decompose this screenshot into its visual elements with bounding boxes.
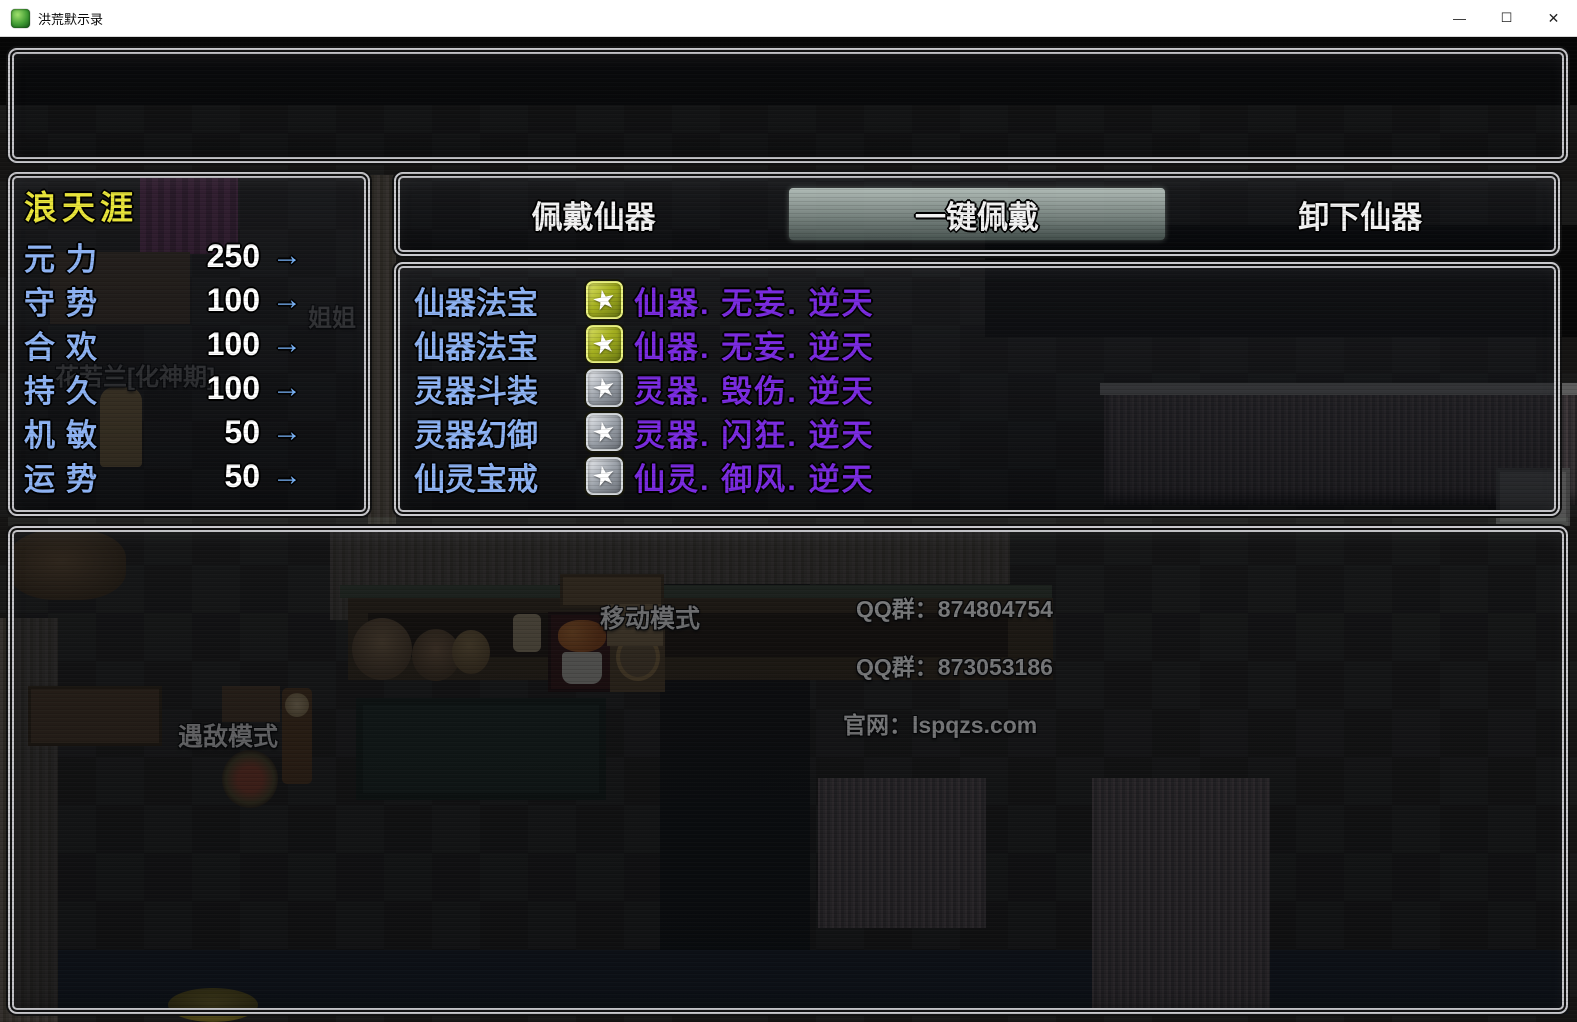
window-controls: — ☐ ✕ [1436, 0, 1577, 37]
stat-value: 100 [207, 326, 260, 363]
stat-row-yuanli: 元力 250 → [24, 234, 354, 278]
stat-label: 机敏 [24, 410, 108, 455]
tab-one-key-equip[interactable]: 一键佩戴 [789, 188, 1164, 240]
stat-row-chijiu: 持久 100 → [24, 366, 354, 410]
close-button-icon[interactable]: ✕ [1530, 0, 1577, 37]
equip-item-name: 灵器. 闪狂. 逆天 [634, 410, 874, 455]
equipment-row[interactable]: 仙器法宝 ★ 仙器. 无妄. 逆天 [414, 322, 1540, 366]
stat-value: 100 [207, 282, 260, 319]
maximize-button-icon[interactable]: ☐ [1483, 0, 1530, 37]
tab-unequip-artifact[interactable]: 卸下仙器 [1173, 188, 1548, 240]
character-name: 浪天涯 [24, 182, 354, 234]
equipment-row[interactable]: 仙灵宝戒 ★ 仙灵. 御风. 逆天 [414, 454, 1540, 498]
equipment-row[interactable]: 仙器法宝 ★ 仙器. 无妄. 逆天 [414, 278, 1540, 322]
stat-row-yunshi: 运势 50 → [24, 454, 354, 498]
stat-label: 元力 [24, 234, 108, 279]
equipment-panel: 仙器法宝 ★ 仙器. 无妄. 逆天 仙器法宝 ★ 仙器. 无妄. 逆天 灵器斗装… [394, 262, 1560, 516]
tab-bar-panel: 佩戴仙器 一键佩戴 卸下仙器 [394, 172, 1560, 256]
stat-arrow-icon: → [260, 459, 302, 493]
stat-arrow-icon: → [260, 415, 302, 449]
stat-value: 50 [224, 414, 260, 451]
star-icon: ★ [586, 369, 623, 407]
stat-label: 持久 [24, 366, 108, 411]
window-titlebar: 洪荒默示录 — ☐ ✕ [0, 0, 1577, 37]
equipment-row[interactable]: 灵器幻御 ★ 灵器. 闪狂. 逆天 [414, 410, 1540, 454]
app-icon [11, 9, 30, 28]
stat-value: 250 [207, 238, 260, 275]
stat-arrow-icon: → [260, 371, 302, 405]
stat-value: 50 [224, 458, 260, 495]
window-title: 洪荒默示录 [38, 9, 103, 28]
game-screen: 花若兰[化神期] 姐姐 移动模式 遇敌模式 QQ群：874804754 QQ群：… [0, 37, 1577, 1022]
equip-slot-label: 仙器法宝 [414, 322, 586, 367]
star-icon: ★ [586, 413, 623, 451]
top-strip-panel [8, 48, 1568, 163]
equip-item-name: 仙器. 无妄. 逆天 [634, 278, 874, 323]
tab-equip-artifact[interactable]: 佩戴仙器 [406, 188, 781, 240]
stat-label: 守势 [24, 278, 108, 323]
stat-label: 运势 [24, 454, 108, 499]
stat-arrow-icon: → [260, 327, 302, 361]
star-icon: ★ [586, 457, 623, 495]
stat-label: 合欢 [24, 322, 108, 367]
equip-item-name: 仙器. 无妄. 逆天 [634, 322, 874, 367]
stat-row-jimin: 机敏 50 → [24, 410, 354, 454]
equip-item-name: 仙灵. 御风. 逆天 [634, 454, 874, 499]
equip-slot-label: 灵器斗装 [414, 366, 586, 411]
equip-item-name: 灵器. 毁伤. 逆天 [634, 366, 874, 411]
star-icon: ★ [586, 281, 623, 319]
minimize-button-icon[interactable]: — [1436, 0, 1483, 37]
stats-panel: 浪天涯 元力 250 → 守势 100 → 合欢 100 → 持久 100 → [8, 172, 370, 516]
equip-slot-label: 仙灵宝戒 [414, 454, 586, 499]
bottom-panel [8, 526, 1568, 1014]
equip-slot-label: 仙器法宝 [414, 278, 586, 323]
stat-arrow-icon: → [260, 239, 302, 273]
stat-row-hehuan: 合欢 100 → [24, 322, 354, 366]
stat-value: 100 [207, 370, 260, 407]
stat-arrow-icon: → [260, 283, 302, 317]
equipment-row[interactable]: 灵器斗装 ★ 灵器. 毁伤. 逆天 [414, 366, 1540, 410]
star-icon: ★ [586, 325, 623, 363]
equip-slot-label: 灵器幻御 [414, 410, 586, 455]
stat-row-shoushi: 守势 100 → [24, 278, 354, 322]
